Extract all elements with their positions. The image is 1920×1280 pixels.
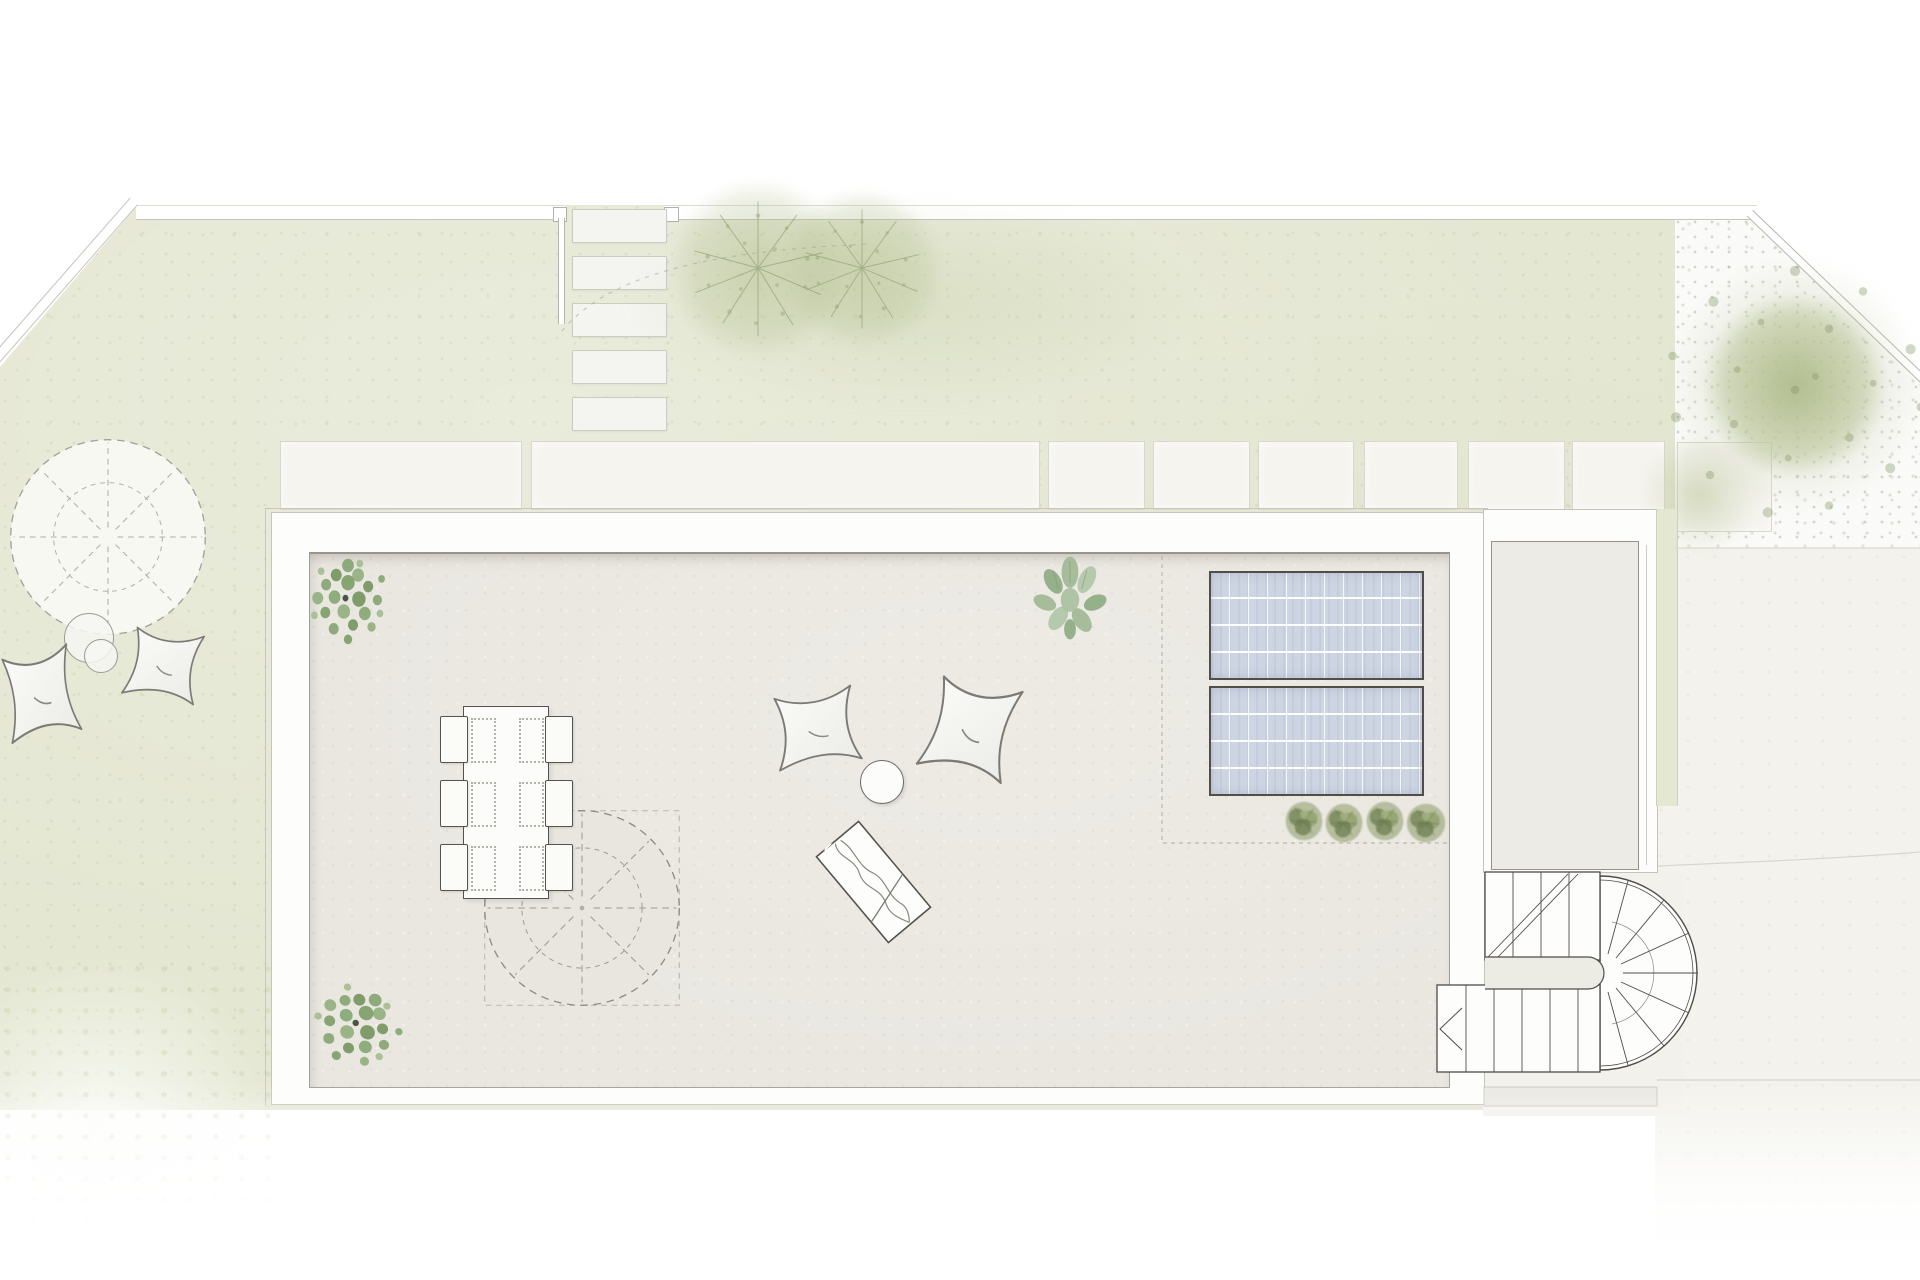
bottom-fade [0, 1080, 1920, 1280]
dining-chair [440, 780, 468, 827]
solar-panel [1209, 686, 1424, 796]
placemat [519, 846, 544, 891]
parasol-lawn-icon [5, 434, 211, 640]
placemat [471, 782, 496, 827]
placemat [471, 846, 496, 891]
green-strip [1656, 509, 1678, 806]
spiral-staircase [1425, 855, 1715, 1110]
dining-chair [545, 716, 573, 763]
paver [1364, 441, 1458, 510]
sage-plant-icon [1028, 552, 1112, 644]
solar-panel [1209, 571, 1424, 680]
dining-chair [440, 716, 468, 763]
bush-icon [306, 552, 390, 648]
grass-tuft-icon [1321, 799, 1367, 847]
stair-zone-floor [1491, 541, 1639, 870]
side-table [84, 639, 118, 673]
lounge-pillow-icon [764, 677, 869, 777]
paver [1048, 441, 1145, 510]
lounge-pillow-icon [114, 614, 214, 714]
lounge-pillow-icon [0, 634, 88, 749]
grass-tuft-icon [1402, 799, 1450, 847]
boundary-band-left [136, 205, 565, 220]
placemat [519, 718, 544, 763]
site-plan [0, 0, 1920, 1280]
paver [1468, 441, 1565, 510]
tree-branches-icon [778, 184, 946, 352]
placemat [519, 782, 544, 827]
paver [280, 441, 522, 510]
stair-zone-edge-line [1646, 545, 1647, 865]
dining-chair [545, 780, 573, 827]
placemat [471, 718, 496, 763]
paver [1258, 441, 1354, 510]
paver [1153, 441, 1250, 510]
dining-chair [440, 844, 468, 891]
paver [531, 441, 1040, 510]
fence-line [558, 218, 565, 324]
round-side-table [860, 760, 904, 804]
dining-chair [545, 844, 573, 891]
